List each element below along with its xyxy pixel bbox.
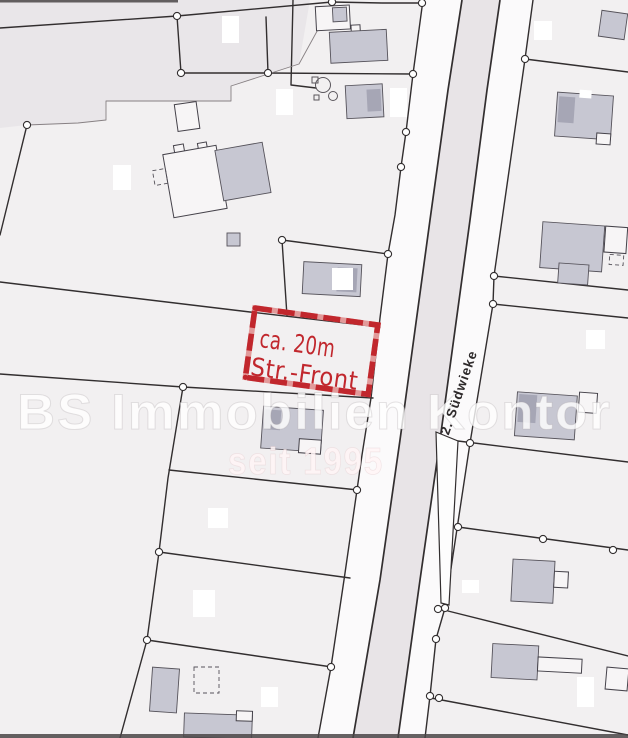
survey-node (384, 250, 391, 257)
survey-node (409, 70, 416, 77)
survey-node (609, 546, 616, 553)
building (227, 233, 240, 246)
erased-label (276, 89, 293, 115)
parcel-boundary (282, 240, 388, 254)
parcel-boundary (525, 59, 628, 72)
survey-node (490, 272, 497, 279)
parcel-boundary (159, 552, 350, 578)
building (539, 222, 628, 288)
erased-label (113, 165, 131, 190)
building (149, 667, 179, 713)
erased-label (534, 21, 552, 40)
map-canvas: BS Immobilien Kontor seit 1995 2. Südwie… (0, 0, 628, 738)
building (184, 709, 253, 738)
building (605, 667, 628, 691)
watermark-since: seit 1995 (228, 441, 384, 483)
watermark-layer: BS Immobilien Kontor seit 1995 (17, 384, 612, 483)
erased-label (208, 508, 228, 528)
scan-artifact (0, 734, 628, 738)
survey-node (441, 604, 448, 611)
erased-label (586, 330, 605, 349)
survey-node (264, 69, 271, 76)
watermark-brand: BS Immobilien Kontor (17, 384, 612, 440)
survey-node (489, 300, 496, 307)
building (194, 667, 219, 693)
building (315, 5, 350, 31)
building (598, 10, 627, 39)
erased-label (261, 687, 278, 707)
erased-label (193, 590, 215, 617)
parcel-boundary (0, 125, 27, 235)
erased-label (390, 88, 407, 117)
building (174, 102, 200, 132)
cadastral-map: BS Immobilien Kontor seit 1995 2. Südwie… (0, 0, 628, 738)
survey-node (353, 486, 360, 493)
survey-node (521, 55, 528, 62)
survey-node (418, 0, 425, 7)
parcel-boundary (493, 304, 628, 318)
survey-node (143, 636, 150, 643)
survey-node (426, 692, 433, 699)
survey-node (454, 523, 461, 530)
building (554, 88, 614, 145)
survey-node (432, 635, 439, 642)
parcel-boundary (282, 240, 287, 316)
erased-label (332, 268, 353, 290)
parcel-boundary (147, 640, 332, 667)
survey-node (466, 439, 473, 446)
survey-node (278, 236, 285, 243)
building (345, 84, 384, 119)
survey-node (328, 0, 335, 6)
parcel-boundary (431, 698, 628, 735)
survey-node (177, 69, 184, 76)
survey-node (23, 121, 30, 128)
survey-node (173, 12, 180, 19)
survey-node (435, 694, 442, 701)
survey-node (434, 605, 441, 612)
erased-label (222, 16, 239, 43)
scan-artifact (0, 0, 178, 3)
building (149, 130, 273, 220)
building (511, 559, 569, 604)
survey-node (539, 535, 546, 542)
erased-label (462, 580, 479, 593)
survey-node (397, 163, 404, 170)
survey-node (155, 548, 162, 555)
survey-node (327, 663, 334, 670)
tree-symbol (312, 77, 338, 101)
tinted-parcel (0, 0, 310, 128)
building (491, 644, 583, 683)
survey-node (402, 128, 409, 135)
erased-label (577, 677, 594, 707)
parcel-boundary (458, 441, 628, 462)
